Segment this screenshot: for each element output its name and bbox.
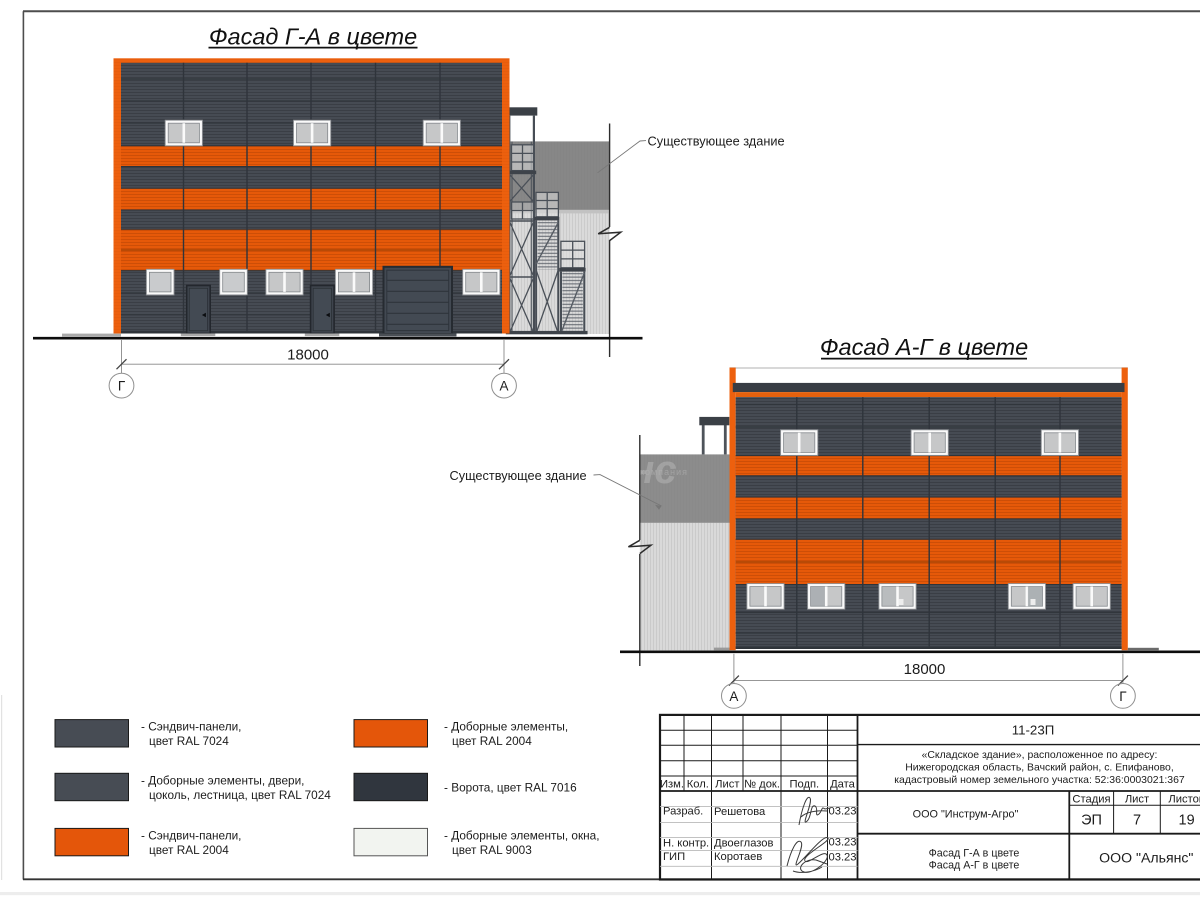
svg-text:03.23: 03.23 [829, 836, 857, 848]
svg-text:Листов: Листов [1168, 793, 1200, 805]
svg-text:19: 19 [1179, 813, 1195, 829]
svg-text:- Доборные элементы, окна,: - Доборные элементы, окна, [444, 828, 600, 842]
svg-text:цоколь, лестница, цвет RAL 702: цоколь, лестница, цвет RAL 7024 [149, 788, 331, 802]
svg-text:18000: 18000 [904, 661, 946, 678]
svg-text:А: А [729, 689, 738, 704]
svg-text:цвет RAL 2004: цвет RAL 2004 [452, 734, 532, 748]
svg-text:Фасад А-Г в цвете: Фасад А-Г в цвете [929, 859, 1020, 871]
svg-text:Дата: Дата [830, 778, 856, 790]
svg-text:- Доборные элементы, двери,: - Доборные элементы, двери, [141, 773, 304, 787]
svg-text:ГИП: ГИП [663, 851, 685, 863]
svg-text:ООО "Альянс": ООО "Альянс" [1099, 850, 1193, 866]
svg-text:А: А [499, 379, 508, 394]
svg-text:Г: Г [118, 379, 126, 394]
svg-text:«Складское здание», расположен: «Складское здание», расположенное по адр… [922, 750, 1158, 761]
svg-text:Коротаев: Коротаев [714, 851, 762, 863]
svg-text:Кол.: Кол. [687, 778, 709, 790]
svg-text:- Сэндвич-панели,: - Сэндвич-панели, [141, 720, 241, 734]
svg-text:7: 7 [1133, 813, 1141, 829]
svg-text:03.23: 03.23 [829, 852, 857, 864]
svg-text:ЭП: ЭП [1081, 813, 1102, 829]
svg-text:Решетова: Решетова [714, 806, 766, 818]
svg-text:Разраб.: Разраб. [663, 805, 703, 817]
svg-text:03.23: 03.23 [829, 805, 857, 817]
svg-text:Изм.: Изм. [660, 778, 684, 790]
svg-text:ООО "Инструм-Агро": ООО "Инструм-Агро" [913, 808, 1019, 820]
svg-text:Фасад Г-А в цвете: Фасад Г-А в цвете [929, 847, 1020, 859]
svg-text:Н. контр.: Н. контр. [663, 838, 709, 850]
svg-text:Нижегородская область, Вачский: Нижегородская область, Вачский район, с.… [905, 762, 1174, 774]
svg-text:18000: 18000 [287, 347, 329, 364]
svg-text:11-23П: 11-23П [1012, 723, 1055, 738]
svg-text:цвет RAL 2004: цвет RAL 2004 [149, 843, 229, 857]
svg-text:Лист: Лист [1125, 793, 1149, 805]
svg-text:№ док.: № док. [744, 778, 780, 790]
svg-text:компания: компания [640, 467, 688, 477]
svg-text:Лист: Лист [715, 778, 739, 790]
svg-text:цвет RAL 9003: цвет RAL 9003 [452, 843, 532, 857]
svg-text:- Ворота, цвет RAL 7016: - Ворота, цвет RAL 7016 [444, 780, 577, 794]
svg-text:Фасад Г-А в цвете: Фасад Г-А в цвете [209, 24, 417, 50]
svg-text:Фасад А-Г в цвете: Фасад А-Г в цвете [820, 334, 1028, 360]
svg-text:Существующее здание: Существующее здание [648, 133, 785, 148]
svg-text:- Доборные элементы,: - Доборные элементы, [444, 720, 568, 734]
svg-text:Двоеглазов: Двоеглазов [714, 838, 774, 850]
svg-text:Существующее здание: Существующее здание [450, 468, 587, 483]
svg-text:- Сэндвич-панели,: - Сэндвич-панели, [141, 828, 241, 842]
svg-text:Подп.: Подп. [789, 778, 819, 790]
svg-text:кадастровый номер земельного у: кадастровый номер земельного участка: 52… [894, 775, 1185, 786]
svg-text:Г: Г [1119, 689, 1127, 704]
svg-text:Стадия: Стадия [1072, 793, 1110, 805]
svg-text:цвет RAL 7024: цвет RAL 7024 [149, 734, 229, 748]
